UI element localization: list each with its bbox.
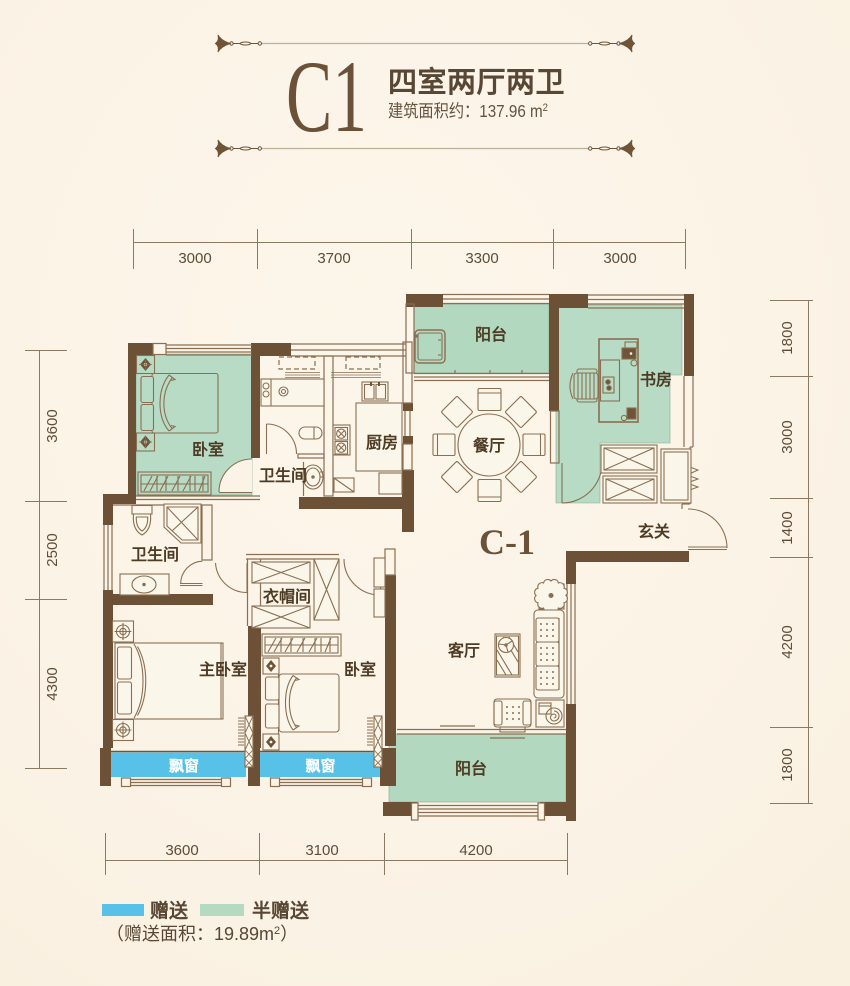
svg-text:卫生间: 卫生间 xyxy=(259,466,307,485)
svg-text:3000: 3000 xyxy=(178,250,211,267)
svg-text:玄关: 玄关 xyxy=(638,522,670,541)
svg-text:阳台: 阳台 xyxy=(455,759,487,778)
svg-text:2500: 2500 xyxy=(44,533,61,566)
svg-text:3100: 3100 xyxy=(305,842,338,859)
svg-text:卧室: 卧室 xyxy=(344,660,376,679)
svg-text:主卧室: 主卧室 xyxy=(199,660,247,679)
svg-text:四室两厅两卫: 四室两厅两卫 xyxy=(388,65,565,99)
svg-text:（赠送面积：19.89m2）: （赠送面积：19.89m2） xyxy=(106,924,298,944)
svg-text:4200: 4200 xyxy=(459,842,492,859)
svg-text:3600: 3600 xyxy=(165,842,198,859)
svg-text:飘窗: 飘窗 xyxy=(305,757,335,775)
svg-text:建筑面积约：137.96 m2: 建筑面积约：137.96 m2 xyxy=(388,101,548,121)
svg-text:C-1: C-1 xyxy=(479,522,535,562)
svg-text:厨房: 厨房 xyxy=(366,433,398,452)
svg-text:1400: 1400 xyxy=(779,511,796,544)
svg-text:3700: 3700 xyxy=(317,250,350,267)
svg-text:3000: 3000 xyxy=(603,250,636,267)
svg-text:卫生间: 卫生间 xyxy=(131,545,179,564)
svg-text:卧室: 卧室 xyxy=(192,440,224,459)
svg-text:3300: 3300 xyxy=(465,250,498,267)
svg-text:1800: 1800 xyxy=(779,748,796,781)
svg-text:4300: 4300 xyxy=(44,667,61,700)
svg-text:4200: 4200 xyxy=(779,625,796,658)
svg-text:客厅: 客厅 xyxy=(448,641,480,660)
svg-text:半赠送: 半赠送 xyxy=(252,899,310,922)
svg-text:C1: C1 xyxy=(286,40,367,154)
svg-text:赠送: 赠送 xyxy=(150,899,189,922)
svg-text:飘窗: 飘窗 xyxy=(169,757,199,775)
svg-text:3600: 3600 xyxy=(44,409,61,442)
svg-text:书房: 书房 xyxy=(640,370,672,389)
svg-text:3000: 3000 xyxy=(779,420,796,453)
svg-text:1800: 1800 xyxy=(779,321,796,354)
svg-text:餐厅: 餐厅 xyxy=(472,436,505,455)
svg-text:衣帽间: 衣帽间 xyxy=(263,587,311,606)
svg-text:阳台: 阳台 xyxy=(475,325,507,344)
